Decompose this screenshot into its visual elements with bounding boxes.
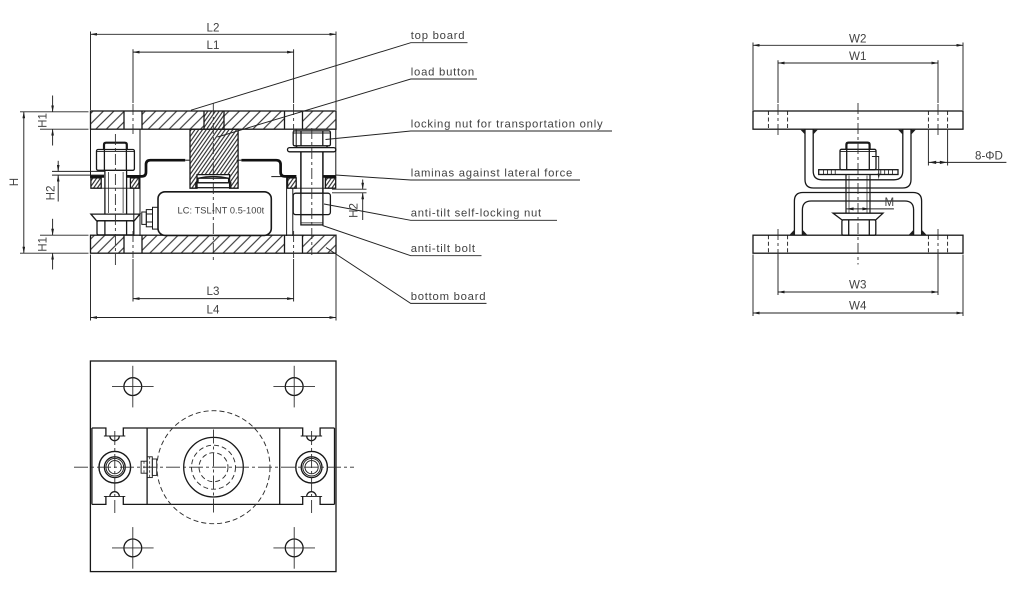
svg-text:H2: H2 bbox=[45, 186, 58, 201]
svg-text:H: H bbox=[8, 178, 21, 186]
svg-text:W1: W1 bbox=[849, 50, 866, 63]
svg-text:W4: W4 bbox=[849, 300, 867, 313]
svg-text:8-ΦD: 8-ΦD bbox=[975, 149, 1003, 162]
svg-text:W3: W3 bbox=[849, 279, 866, 292]
svg-text:laminas against lateral force: laminas against lateral force bbox=[411, 167, 573, 179]
svg-text:H1: H1 bbox=[37, 237, 50, 252]
svg-text:L1: L1 bbox=[207, 39, 220, 52]
svg-text:LC: TSL-NT 0.5-100t: LC: TSL-NT 0.5-100t bbox=[178, 206, 265, 216]
svg-text:anti-tilt bolt: anti-tilt bolt bbox=[411, 243, 476, 255]
svg-text:M: M bbox=[885, 196, 895, 209]
svg-text:L3: L3 bbox=[207, 285, 220, 298]
svg-text:anti-tilt self-locking nut: anti-tilt self-locking nut bbox=[411, 208, 542, 220]
svg-text:L4: L4 bbox=[207, 304, 220, 317]
svg-text:locking nut for transportation: locking nut for transportation only bbox=[411, 118, 604, 130]
svg-text:L2: L2 bbox=[207, 21, 220, 34]
svg-text:load button: load button bbox=[411, 67, 475, 79]
svg-text:top board: top board bbox=[411, 30, 466, 42]
svg-text:W2: W2 bbox=[849, 32, 866, 45]
svg-text:H1: H1 bbox=[37, 113, 50, 128]
svg-text:bottom board: bottom board bbox=[411, 291, 487, 303]
